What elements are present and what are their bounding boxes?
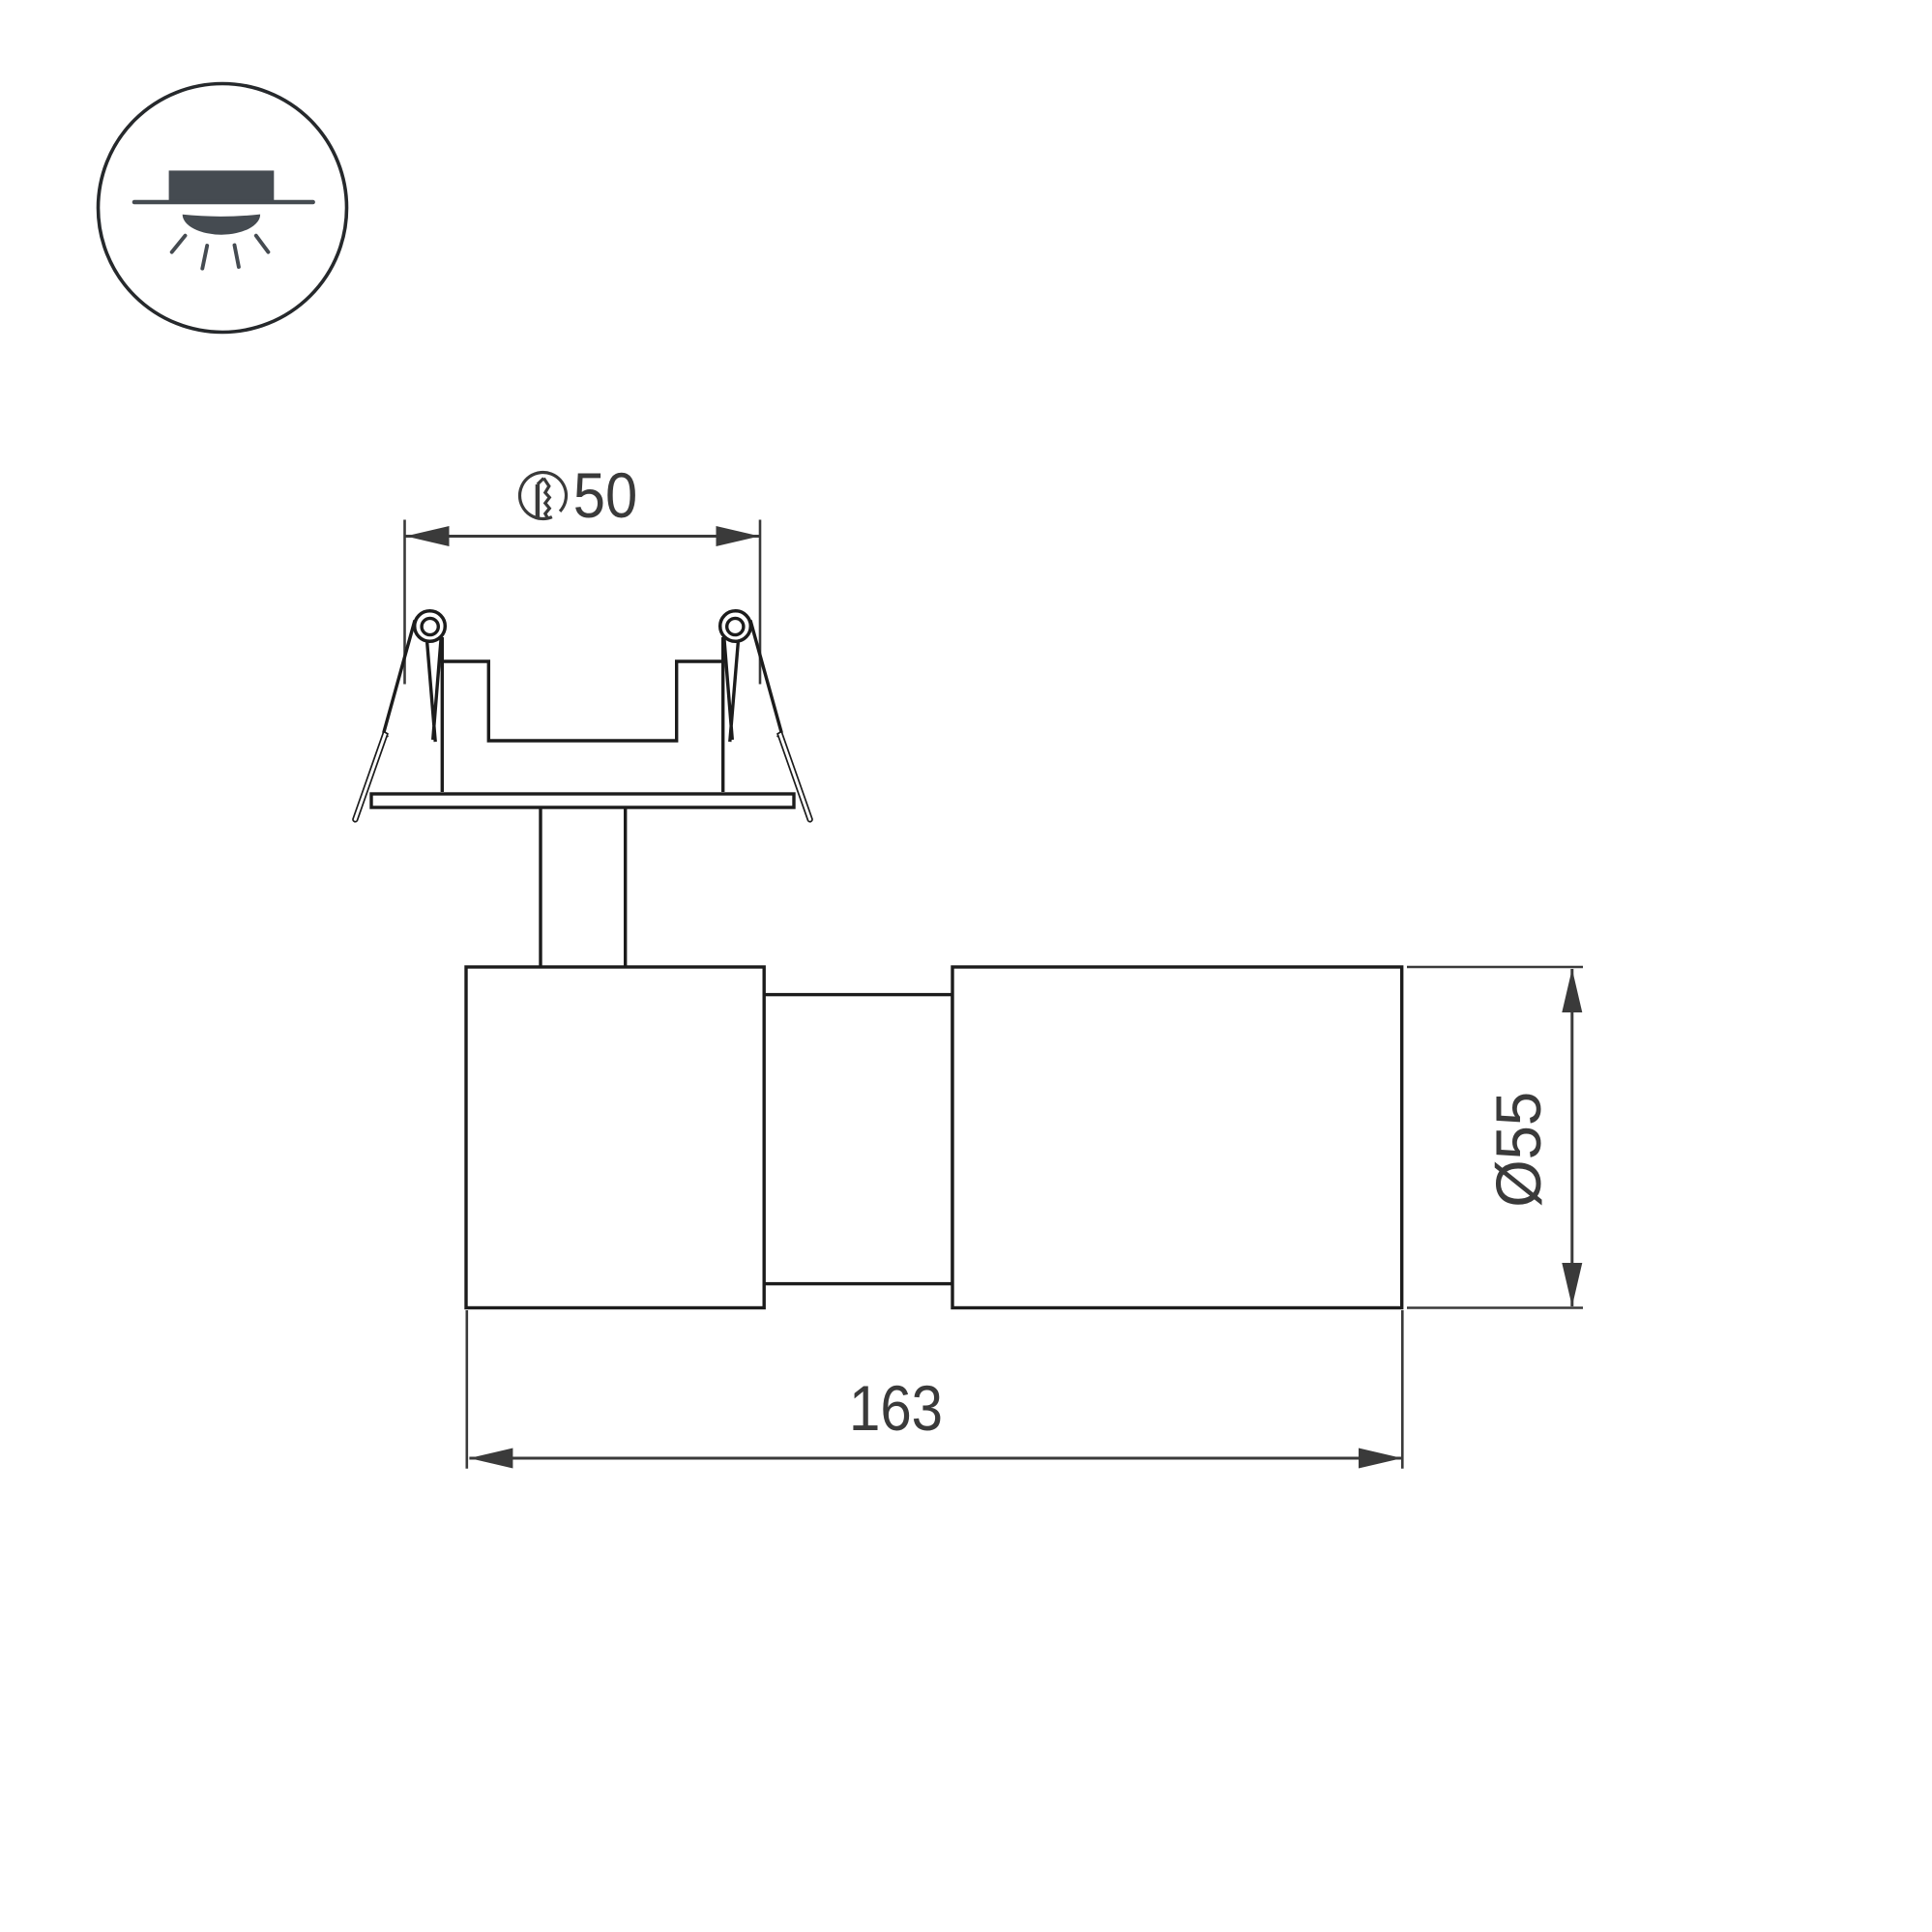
svg-text:Ø55: Ø55 xyxy=(1482,1092,1554,1208)
svg-text:50: 50 xyxy=(573,459,638,531)
svg-text:163: 163 xyxy=(849,1372,943,1444)
